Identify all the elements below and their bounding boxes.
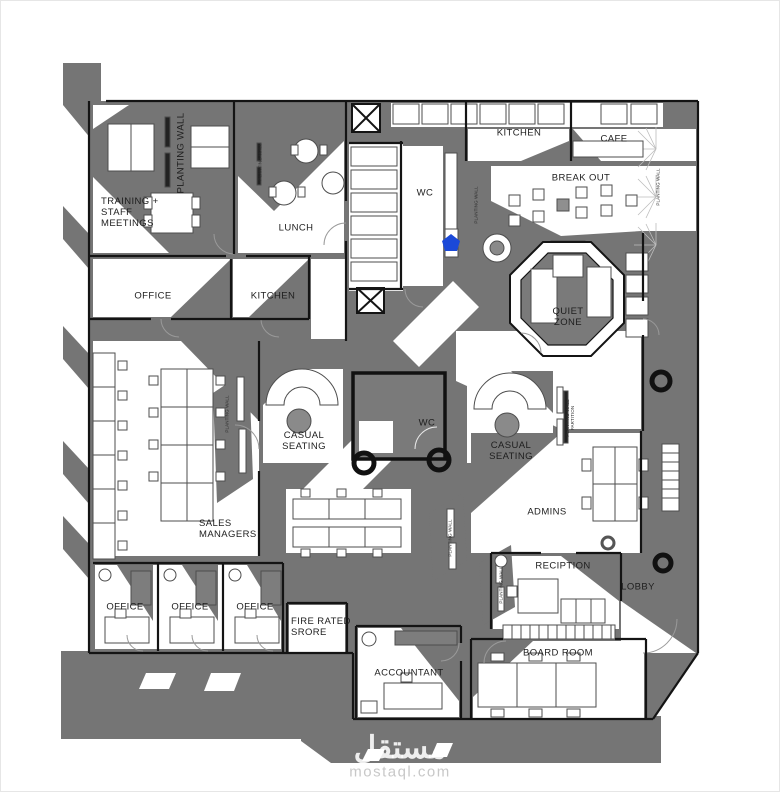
wc-pod	[353, 373, 449, 473]
quiet-zone-octagon	[510, 242, 624, 356]
floor-plan-drawing	[1, 1, 780, 792]
floor-plan-canvas: TRAINING + STAFF MEETINGS PLANTING WALL …	[0, 0, 780, 792]
